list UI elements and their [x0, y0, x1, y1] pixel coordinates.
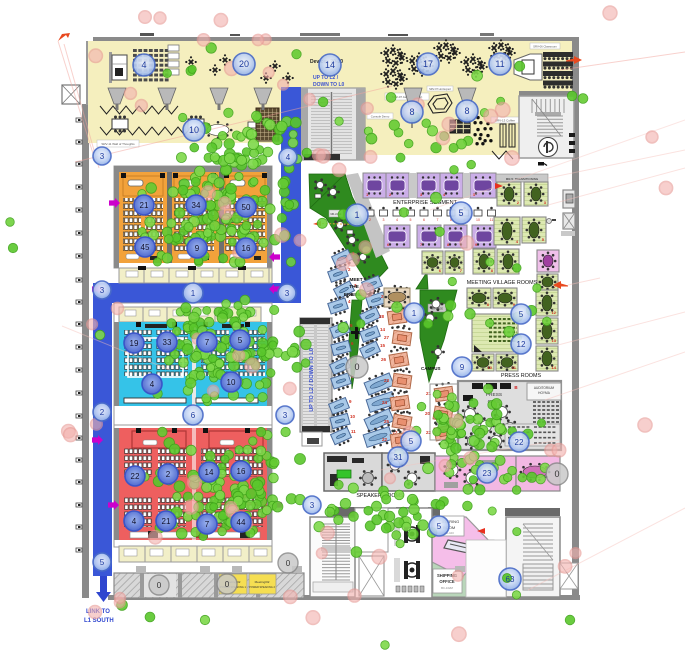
- svg-text:10: 10: [227, 378, 236, 387]
- svg-text:9: 9: [460, 363, 465, 372]
- svg-text:13: 13: [552, 338, 557, 343]
- svg-text:7: 7: [437, 218, 439, 222]
- svg-text:MEET: MEET: [349, 277, 362, 283]
- svg-text:7: 7: [205, 520, 210, 529]
- svg-text:63: 63: [506, 575, 515, 584]
- svg-text:21: 21: [162, 517, 171, 526]
- svg-text:PRESS ROOMS: PRESS ROOMS: [501, 373, 542, 379]
- svg-text:11: 11: [495, 59, 504, 69]
- svg-text:25: 25: [384, 419, 390, 424]
- svg-text:1: 1: [412, 309, 417, 318]
- svg-text:5: 5: [458, 208, 463, 218]
- svg-text:3: 3: [285, 289, 290, 298]
- svg-text:6: 6: [191, 411, 196, 420]
- svg-text:20: 20: [239, 59, 249, 69]
- svg-text:28: 28: [379, 314, 385, 319]
- svg-text:26: 26: [381, 357, 387, 362]
- svg-text:21: 21: [426, 391, 432, 396]
- svg-text:L1 SOUTH: L1 SOUTH: [84, 618, 114, 624]
- svg-text:3: 3: [100, 286, 105, 295]
- svg-text:4: 4: [132, 517, 137, 526]
- svg-text:6: 6: [423, 218, 425, 222]
- svg-text:16: 16: [242, 244, 251, 253]
- svg-text:SRV-07 Hot Expert: SRV-07 Hot Expert: [429, 87, 451, 91]
- svg-text:14: 14: [325, 60, 335, 70]
- svg-text:3: 3: [283, 411, 288, 420]
- svg-text:Meeting/02: Meeting/02: [255, 580, 270, 584]
- svg-text:22: 22: [131, 472, 140, 481]
- svg-text:7: 7: [205, 338, 210, 347]
- svg-text:16: 16: [237, 467, 246, 476]
- svg-text:Console Demo: Console Demo: [371, 115, 390, 119]
- svg-text:HOYMA: HOYMA: [538, 391, 551, 395]
- svg-text:5: 5: [437, 522, 442, 531]
- svg-text:14: 14: [380, 327, 386, 332]
- svg-text:MEETING VILLAGE ROOMS: MEETING VILLAGE ROOMS: [467, 280, 538, 286]
- svg-text:23: 23: [384, 378, 390, 383]
- svg-text:OFFICE: OFFICE: [439, 579, 455, 584]
- svg-text:AUDITORIUM: AUDITORIUM: [534, 386, 554, 390]
- svg-text:SRV-13 Coffee: SRV-13 Coffee: [495, 119, 515, 123]
- svg-text:5: 5: [238, 336, 243, 345]
- svg-text:45: 45: [141, 243, 150, 252]
- svg-text:12: 12: [517, 340, 526, 349]
- svg-text:5: 5: [410, 218, 412, 222]
- svg-text:23: 23: [483, 469, 492, 478]
- svg-text:0: 0: [157, 581, 162, 590]
- svg-text:8: 8: [409, 107, 414, 117]
- svg-text:3: 3: [100, 152, 105, 161]
- svg-text:1: 1: [191, 289, 196, 298]
- svg-text:33: 33: [163, 338, 172, 347]
- svg-text:44: 44: [237, 518, 246, 527]
- svg-text:DOWN TO L0: DOWN TO L0: [313, 82, 345, 88]
- svg-text:ENTERPRISE SEGMENT: ENTERPRISE SEGMENT: [393, 200, 458, 206]
- svg-text:21: 21: [140, 201, 149, 210]
- svg-text:14: 14: [205, 468, 214, 477]
- svg-text:3: 3: [310, 501, 315, 510]
- svg-text:SRV-11 Wall of Thoughts: SRV-11 Wall of Thoughts: [101, 142, 135, 146]
- svg-text:0: 0: [225, 580, 230, 589]
- svg-text:22: 22: [382, 437, 388, 442]
- svg-text:5: 5: [100, 558, 105, 567]
- svg-text:19: 19: [130, 339, 139, 348]
- svg-text:31: 31: [394, 453, 403, 462]
- svg-text:11: 11: [351, 429, 356, 434]
- svg-text:15: 15: [380, 343, 386, 348]
- svg-text:14: 14: [552, 365, 557, 370]
- svg-text:12: 12: [552, 310, 557, 315]
- svg-text:10: 10: [189, 125, 199, 135]
- svg-text:3: 3: [383, 218, 385, 222]
- svg-text:2: 2: [369, 218, 371, 222]
- svg-text:10: 10: [476, 218, 480, 222]
- svg-text:POWER SPEAKING 2: POWER SPEAKING 2: [249, 585, 276, 589]
- svg-text:8: 8: [464, 106, 469, 116]
- svg-text:11: 11: [490, 218, 494, 222]
- svg-text:17: 17: [423, 59, 433, 69]
- svg-text:5: 5: [409, 437, 414, 446]
- svg-text:4: 4: [286, 153, 291, 162]
- svg-text:10: 10: [488, 365, 493, 370]
- svg-text:4: 4: [141, 60, 146, 70]
- svg-text:THE: THE: [349, 284, 359, 290]
- svg-text:0: 0: [554, 469, 559, 479]
- svg-text:22: 22: [426, 430, 432, 435]
- svg-text:9: 9: [195, 244, 200, 253]
- svg-text:50: 50: [242, 203, 251, 212]
- svg-text:1: 1: [354, 210, 359, 220]
- svg-text:4: 4: [150, 380, 155, 389]
- svg-text:24: 24: [382, 400, 388, 405]
- svg-text:10: 10: [350, 414, 356, 419]
- svg-text:UP TO L2 / DOWN TO L0: UP TO L2 / DOWN TO L0: [309, 348, 315, 412]
- svg-text:2: 2: [166, 470, 171, 479]
- svg-text:BC-102M: BC-102M: [441, 586, 453, 590]
- svg-text:0: 0: [354, 362, 359, 372]
- svg-text:SRV-06 Classroom: SRV-06 Classroom: [533, 45, 557, 49]
- svg-text:5: 5: [519, 310, 524, 319]
- svg-text:34: 34: [192, 201, 201, 210]
- svg-text:4: 4: [396, 218, 398, 222]
- svg-text:0: 0: [286, 559, 291, 568]
- svg-text:27: 27: [384, 335, 390, 340]
- svg-text:CAMPUS: CAMPUS: [421, 366, 441, 371]
- svg-text:2: 2: [100, 408, 105, 417]
- svg-text:22: 22: [515, 438, 524, 447]
